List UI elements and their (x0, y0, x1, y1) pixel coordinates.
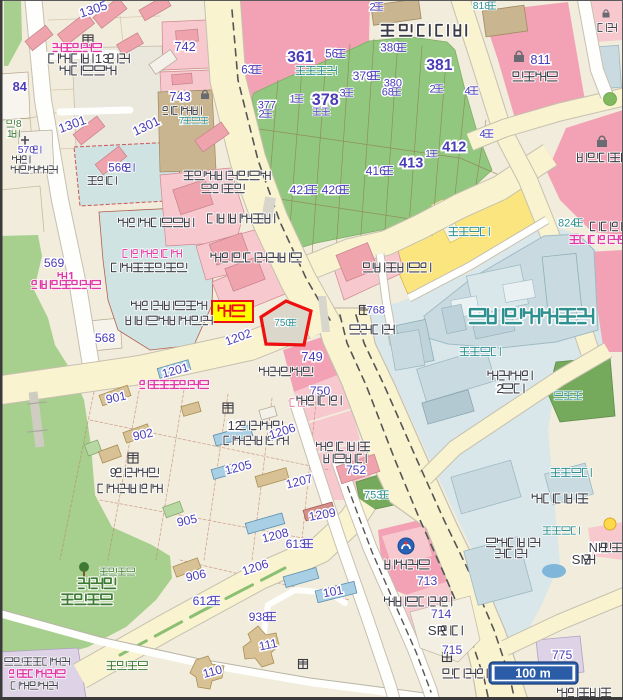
svg-text:379: 379 (353, 69, 374, 83)
svg-text:378: 378 (312, 91, 339, 109)
svg-text:570: 570 (18, 145, 36, 156)
svg-text:56: 56 (325, 48, 338, 61)
svg-text:416: 416 (366, 164, 387, 178)
svg-text:715: 715 (442, 643, 463, 657)
svg-text:100 m: 100 m (515, 667, 550, 681)
svg-text:713: 713 (417, 574, 438, 588)
svg-text:613: 613 (286, 537, 307, 551)
svg-text:13: 13 (95, 51, 110, 66)
svg-text:749: 749 (301, 349, 322, 364)
svg-text:768: 768 (367, 304, 385, 316)
svg-text:84: 84 (13, 79, 28, 94)
svg-text:569: 569 (44, 256, 65, 270)
svg-text:361: 361 (287, 49, 313, 66)
svg-text:3: 3 (340, 87, 346, 99)
svg-text:743: 743 (169, 89, 190, 104)
svg-text:68: 68 (382, 86, 394, 98)
svg-text:381: 381 (426, 57, 452, 74)
svg-text:750: 750 (274, 318, 291, 329)
svg-text:420: 420 (322, 183, 343, 197)
svg-text:2: 2 (259, 108, 265, 120)
svg-text:824: 824 (558, 217, 576, 229)
svg-text:753: 753 (364, 489, 382, 501)
svg-text:775: 775 (552, 648, 573, 662)
svg-text:412: 412 (442, 140, 466, 156)
svg-text:612: 612 (193, 594, 214, 608)
svg-text:421: 421 (290, 183, 311, 197)
svg-text:8: 8 (16, 119, 22, 130)
svg-text:1: 1 (290, 93, 296, 105)
svg-text:811: 811 (530, 52, 550, 67)
svg-text:568: 568 (95, 331, 116, 345)
svg-text:4: 4 (465, 85, 471, 97)
svg-text:566: 566 (108, 162, 127, 175)
svg-text:380: 380 (380, 42, 399, 55)
svg-text:2: 2 (430, 83, 436, 95)
svg-text:938: 938 (249, 610, 270, 624)
svg-text:63: 63 (241, 64, 254, 77)
svg-text:742: 742 (174, 39, 195, 54)
svg-text:413: 413 (399, 156, 423, 172)
svg-text:714: 714 (431, 607, 452, 621)
svg-text:752: 752 (346, 463, 367, 477)
svg-text:2: 2 (370, 1, 376, 13)
svg-text:4: 4 (480, 128, 486, 140)
svg-text:818: 818 (473, 1, 491, 12)
svg-text:7: 7 (179, 116, 185, 127)
svg-text:1: 1 (425, 149, 431, 160)
svg-text:12: 12 (228, 418, 242, 433)
